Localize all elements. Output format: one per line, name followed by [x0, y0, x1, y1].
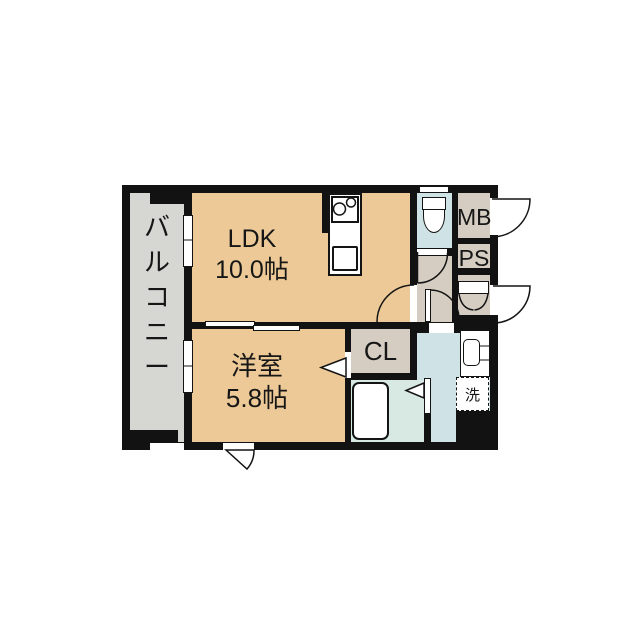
washer-label: 洗	[465, 384, 480, 405]
bottom-right-wall-block	[456, 411, 498, 450]
sliding-door-panel-right	[253, 325, 300, 331]
storage-cabinet	[458, 281, 489, 294]
washroom-door-opening	[429, 323, 454, 333]
ldk-label: LDK 10.0帖	[172, 224, 332, 286]
bathtub-icon	[352, 382, 389, 440]
washbasin-icon	[463, 339, 480, 366]
pipe-space-label: PS	[457, 245, 491, 272]
washroom-door-leaf	[425, 289, 431, 322]
floor-plan: 洗 バ ル コ ニ ー LDK 10.0帖 洋室 5.8帖 CL	[0, 0, 640, 640]
toilet-window	[419, 186, 449, 193]
toilet-door-opening	[417, 249, 447, 255]
sliding-door-panel-left	[205, 321, 255, 327]
stove-icon	[331, 196, 359, 223]
western-door-swing-icon	[226, 450, 254, 469]
western-door-opening	[223, 443, 254, 450]
balcony-stub-top	[150, 193, 188, 204]
meter-box-label: MB	[457, 204, 491, 231]
entry-door-swing-icon	[493, 286, 530, 323]
hall-floor	[417, 248, 452, 333]
bath-divider-wall	[424, 414, 431, 442]
ldk-door-opening	[410, 285, 417, 322]
washing-machine-space: 洗	[456, 377, 489, 411]
entry-door-opening	[490, 285, 498, 315]
closet-label: CL	[351, 336, 410, 367]
western-room-label: 洋室 5.8帖	[177, 350, 337, 414]
left-wall	[122, 185, 130, 450]
kitchen-sink-icon	[332, 246, 358, 271]
bath-door-leaf	[424, 378, 431, 414]
balcony-bottom-opening	[150, 443, 184, 450]
balcony-stub-bottom	[122, 430, 178, 444]
closet-bottom-wall	[345, 373, 417, 380]
mb-ps-wall	[458, 238, 490, 244]
